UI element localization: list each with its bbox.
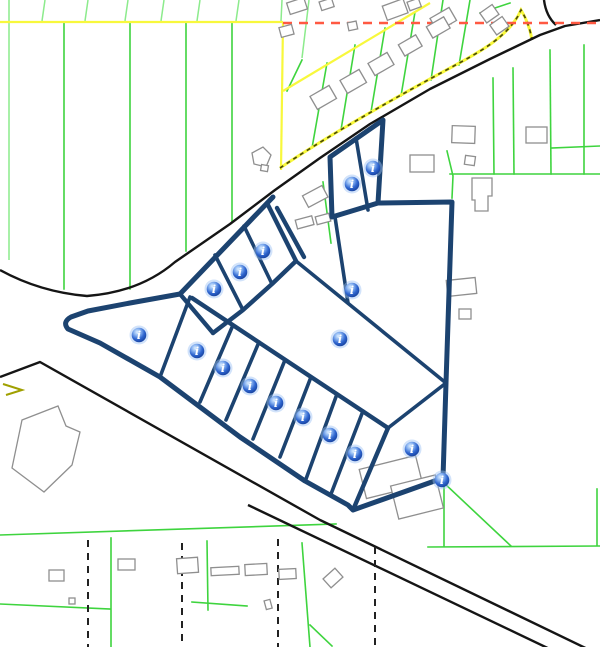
marker-glyph: i	[350, 178, 354, 191]
map-viewport[interactable]: iiiiiiiiiiiiiiiii	[0, 0, 600, 647]
info-marker-icon[interactable]: i	[343, 175, 362, 194]
map-canvas[interactable]: iiiiiiiiiiiiiiiii	[0, 0, 600, 647]
info-marker-icon[interactable]: i	[403, 440, 422, 459]
side-road-edge	[544, 0, 556, 25]
marker-glyph: i	[221, 362, 225, 375]
info-marker-icon[interactable]: i	[321, 426, 340, 445]
info-marker-icon[interactable]: i	[205, 280, 224, 299]
parcel-lines-layer	[0, 0, 600, 647]
marker-glyph: i	[248, 380, 252, 393]
marker-glyph: i	[353, 448, 357, 461]
info-marker-icon[interactable]: i	[188, 342, 207, 361]
marker-glyph: i	[261, 245, 265, 258]
info-marker-icon[interactable]: i	[130, 326, 149, 345]
marker-glyph: i	[212, 283, 216, 296]
info-marker-icon[interactable]: i	[267, 394, 286, 413]
info-marker-icon[interactable]: i	[343, 281, 362, 300]
upper-road-edge	[0, 20, 600, 296]
marker-glyph: i	[274, 397, 278, 410]
marker-glyph: i	[410, 443, 414, 456]
marker-glyph: i	[137, 329, 141, 342]
info-marker-icon[interactable]: i	[214, 359, 233, 378]
info-marker-icon[interactable]: i	[241, 377, 260, 396]
info-marker-icon[interactable]: i	[294, 408, 313, 427]
marker-glyph: i	[301, 411, 305, 424]
info-marker-icon[interactable]: i	[254, 242, 273, 261]
parcel-stubs	[42, 0, 282, 21]
info-marker-icon[interactable]: i	[331, 330, 350, 349]
info-marker-icon[interactable]: i	[346, 445, 365, 464]
road-layer	[0, 0, 600, 647]
buildings-layer	[12, 0, 547, 610]
info-marker-icon[interactable]: i	[433, 471, 452, 490]
marker-glyph: i	[238, 266, 242, 279]
marker-glyph: i	[350, 284, 354, 297]
yellow-arrow-mark	[3, 384, 22, 395]
marker-glyph: i	[440, 474, 444, 487]
info-marker-icon[interactable]: i	[231, 263, 250, 282]
marker-glyph: i	[371, 162, 375, 175]
marker-glyph: i	[338, 333, 342, 346]
selected-parcels-layer[interactable]	[66, 120, 452, 510]
main-road-south-edge	[248, 505, 600, 647]
marker-glyph: i	[195, 345, 199, 358]
marker-glyph: i	[328, 429, 332, 442]
info-marker-icon[interactable]: i	[364, 159, 383, 178]
